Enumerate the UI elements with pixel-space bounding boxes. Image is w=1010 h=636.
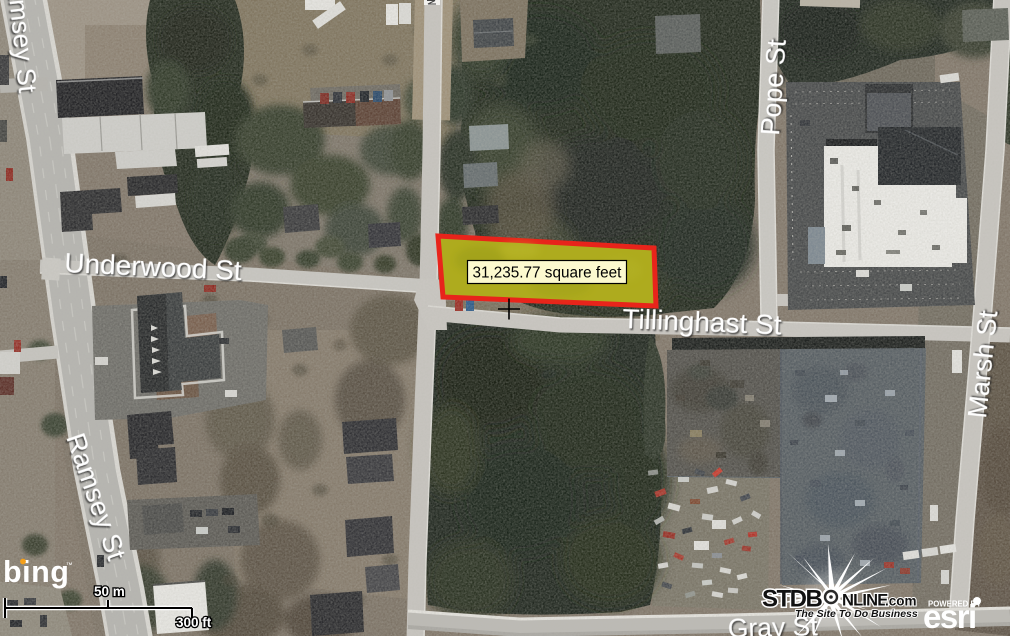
svg-text:31,235.77 square feet: 31,235.77 square feet: [473, 265, 623, 282]
svg-text:Tillinghast St: Tillinghast St: [622, 303, 783, 340]
svg-text:™: ™: [66, 562, 73, 569]
svg-text:The Site To Do Business: The Site To Do Business: [795, 608, 918, 620]
svg-text:300 ft: 300 ft: [176, 615, 212, 630]
svg-text:esri: esri: [923, 598, 976, 635]
svg-text:bing: bing: [3, 555, 69, 589]
svg-text:.com: .com: [885, 594, 917, 609]
svg-text:NLINE: NLINE: [842, 592, 888, 610]
svg-text:50 m: 50 m: [94, 584, 125, 599]
